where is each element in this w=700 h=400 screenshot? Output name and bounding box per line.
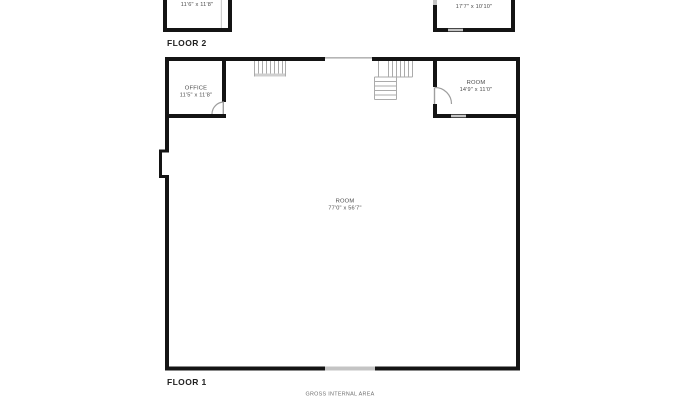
floor1-top-opening xyxy=(325,57,372,59)
floor1-right-wall xyxy=(516,57,520,371)
floor1-left-notch-bottom xyxy=(159,175,169,178)
office-right-wall xyxy=(222,57,226,102)
office-dims: 11'5" x 11'8" xyxy=(180,93,212,99)
floor2-right-room-left-wall-window xyxy=(433,0,437,5)
staircase-l-lower-run xyxy=(375,77,397,100)
floor1-left-wall-lower xyxy=(165,178,169,367)
floor2-right-room-dims: 17'7" x 10'10" xyxy=(456,4,493,10)
floor2-left-room-right-wall xyxy=(228,0,232,32)
office-door-leaf xyxy=(223,102,224,114)
floor2-right-room-left-wall xyxy=(433,5,437,32)
main-room-dims: 77'0" x 56'7" xyxy=(328,206,361,212)
gross-internal-area-label: GROSS INTERNAL AREA xyxy=(305,392,374,398)
floor2-right-room-window xyxy=(448,29,463,32)
floor1-top-wall-right xyxy=(372,57,520,61)
room-right-name: ROOM xyxy=(467,80,486,86)
floorplan-canvas: 11'6" x 11'8" 17'7" x 10'10" FLOOR 2 OFF… xyxy=(0,0,700,400)
room-right-door-leaf xyxy=(434,88,435,105)
floor2-left-room-partition-line xyxy=(221,0,222,28)
floor1-top-wall-left xyxy=(165,57,325,61)
floor1-left-wall-upper xyxy=(165,57,169,152)
floor1-bottom-wall-right xyxy=(375,367,520,371)
floor1-bottom-window xyxy=(325,367,375,371)
floor1-left-notch-side xyxy=(159,150,162,179)
staircase-l-upper-run xyxy=(375,61,413,77)
floor1-label: FLOOR 1 xyxy=(167,377,207,387)
floor1-bottom-wall-left xyxy=(165,367,325,371)
floor2-left-room-bottom-wall xyxy=(163,28,232,32)
office-name: OFFICE xyxy=(185,86,207,92)
staircase-l-shaped xyxy=(375,61,413,100)
floor2-left-room-left-wall xyxy=(163,0,167,32)
office-bottom-wall xyxy=(165,114,226,118)
room-right-dims: 14'9" x 11'0" xyxy=(460,87,493,93)
office-door-arc xyxy=(212,102,224,114)
floorplan-image: 11'6" x 11'8" 17'7" x 10'10" FLOOR 2 OFF… xyxy=(0,0,700,400)
floor2-right-room-right-wall xyxy=(511,0,515,32)
staircase-straight-edge-band xyxy=(254,74,286,77)
floor2-right-room-bottom-wall xyxy=(433,28,515,32)
main-room-name: ROOM xyxy=(336,199,355,205)
floor2-left-room-dims: 11'6" x 11'8" xyxy=(181,2,213,8)
staircase-straight xyxy=(254,61,286,77)
room-right-left-wall-upper xyxy=(433,57,437,87)
room-right-bottom-wall xyxy=(433,114,520,118)
room-right-window xyxy=(451,115,466,118)
floor2-label: FLOOR 2 xyxy=(167,38,207,48)
room-right-door-arc xyxy=(435,88,452,105)
